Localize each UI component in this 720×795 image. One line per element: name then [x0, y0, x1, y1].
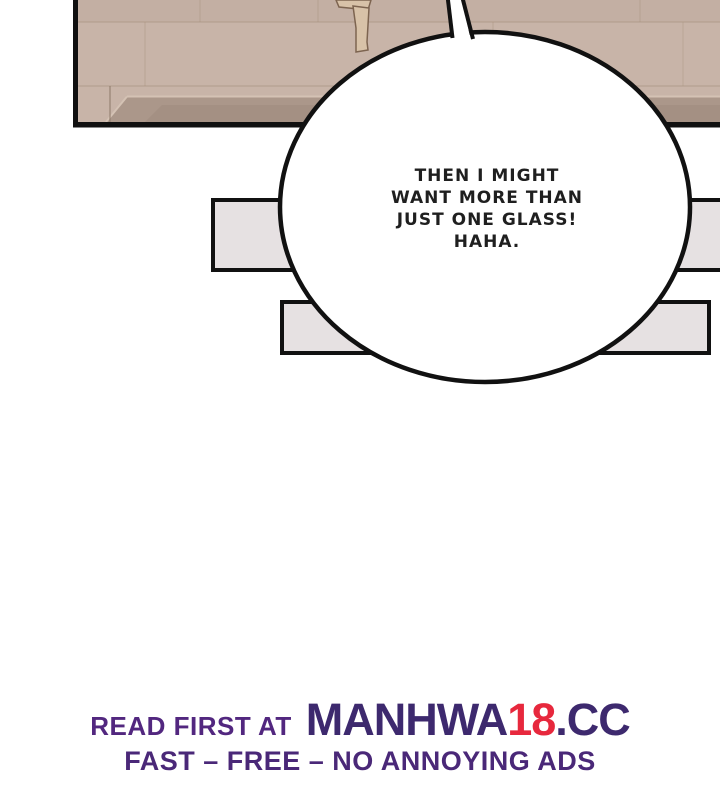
bubble-dialogue: THEN I MIGHT WANT MORE THAN JUST ONE GLA…: [347, 165, 627, 253]
floor-top-band: [78, 0, 720, 22]
manhwa-page: THEN I MIGHT WANT MORE THAN JUST ONE GLA…: [0, 0, 720, 795]
watermark-line1: READ FIRST AT MANHWA18.CC: [0, 697, 720, 742]
brand-name: MANHWA: [306, 694, 507, 745]
watermark-tagline: FAST – FREE – NO ANNOYING ADS: [0, 748, 720, 775]
brand-number: 18: [507, 694, 555, 745]
watermark: READ FIRST AT MANHWA18.CC FAST – FREE – …: [0, 697, 720, 775]
watermark-prefix: READ FIRST AT: [90, 713, 292, 739]
brand-tld: .CC: [555, 694, 630, 745]
watermark-brand: MANHWA18.CC: [306, 697, 630, 742]
panel-border-left: [73, 0, 78, 128]
